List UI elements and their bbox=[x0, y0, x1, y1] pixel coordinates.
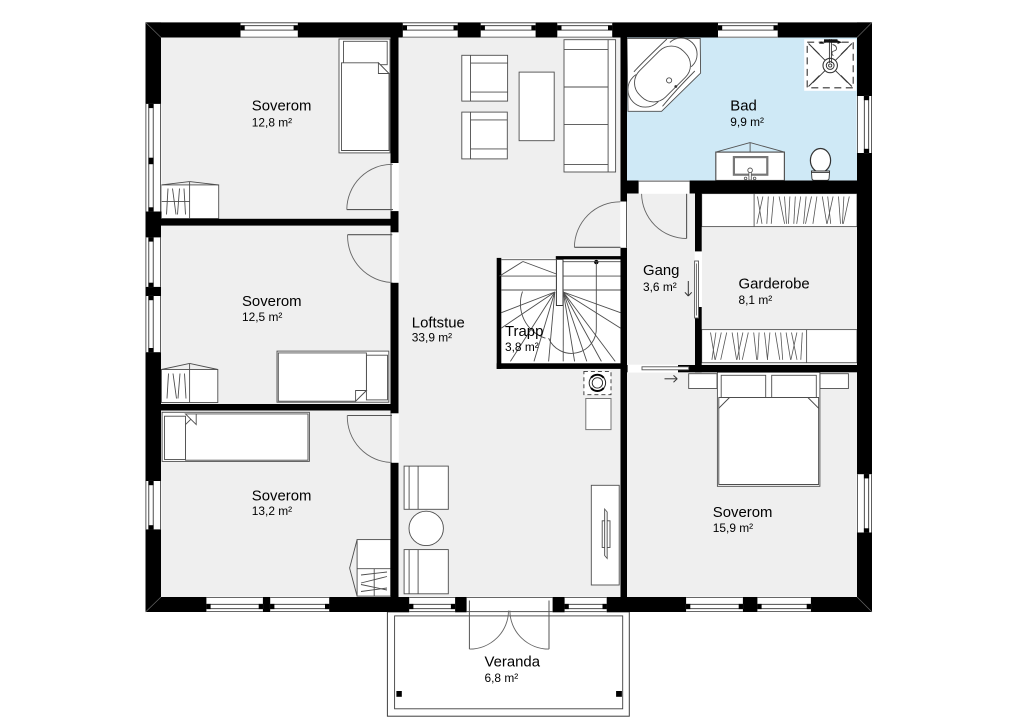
svg-text:12,8 m²: 12,8 m² bbox=[252, 115, 292, 129]
svg-text:12,5 m²: 12,5 m² bbox=[242, 310, 282, 324]
svg-text:9,9 m²: 9,9 m² bbox=[730, 115, 764, 129]
svg-text:13,2 m²: 13,2 m² bbox=[252, 504, 292, 518]
svg-text:Soverom: Soverom bbox=[252, 488, 312, 504]
svg-text:Garderobe: Garderobe bbox=[739, 277, 810, 293]
svg-text:Soverom: Soverom bbox=[713, 505, 773, 521]
svg-text:6,8 m²: 6,8 m² bbox=[485, 671, 519, 685]
svg-text:Veranda: Veranda bbox=[485, 654, 541, 670]
svg-text:8,1 m²: 8,1 m² bbox=[739, 293, 773, 307]
svg-text:Soverom: Soverom bbox=[252, 98, 312, 114]
svg-text:Gang: Gang bbox=[643, 263, 679, 279]
svg-text:3,8 m²: 3,8 m² bbox=[505, 340, 539, 354]
svg-text:Trapp: Trapp bbox=[505, 324, 543, 340]
svg-text:15,9 m²: 15,9 m² bbox=[713, 521, 753, 535]
svg-text:Soverom: Soverom bbox=[242, 294, 302, 310]
svg-text:Bad: Bad bbox=[730, 99, 757, 115]
svg-text:33,9 m²: 33,9 m² bbox=[412, 331, 452, 345]
svg-text:Loftstue: Loftstue bbox=[412, 316, 465, 332]
svg-text:3,6 m²: 3,6 m² bbox=[643, 280, 677, 294]
